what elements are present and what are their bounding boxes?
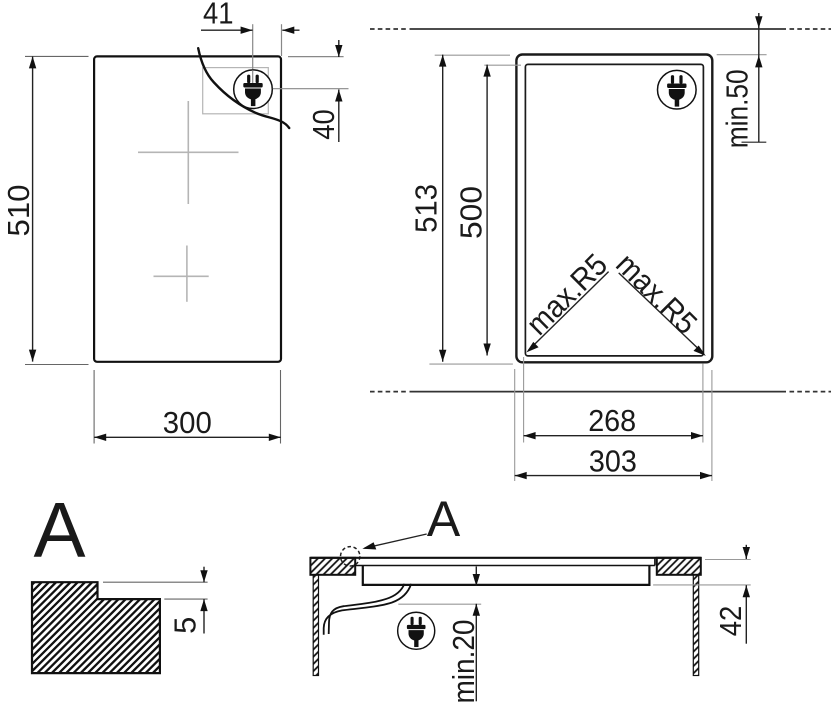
svg-text:42: 42: [713, 606, 748, 637]
svg-text:max.R5: max.R5: [609, 246, 704, 341]
svg-text:min.20: min.20: [446, 620, 481, 704]
svg-text:268: 268: [588, 403, 636, 438]
svg-text:min.50: min.50: [720, 69, 755, 148]
svg-text:500: 500: [454, 186, 489, 239]
svg-text:5: 5: [168, 617, 203, 634]
svg-text:A: A: [427, 491, 461, 547]
svg-text:300: 300: [163, 405, 212, 440]
svg-text:303: 303: [589, 443, 637, 478]
svg-text:513: 513: [409, 184, 444, 233]
svg-text:41: 41: [203, 0, 234, 31]
svg-text:40: 40: [306, 109, 341, 140]
svg-text:510: 510: [1, 185, 36, 237]
svg-text:A: A: [33, 486, 85, 574]
svg-text:max.R5: max.R5: [519, 247, 614, 342]
